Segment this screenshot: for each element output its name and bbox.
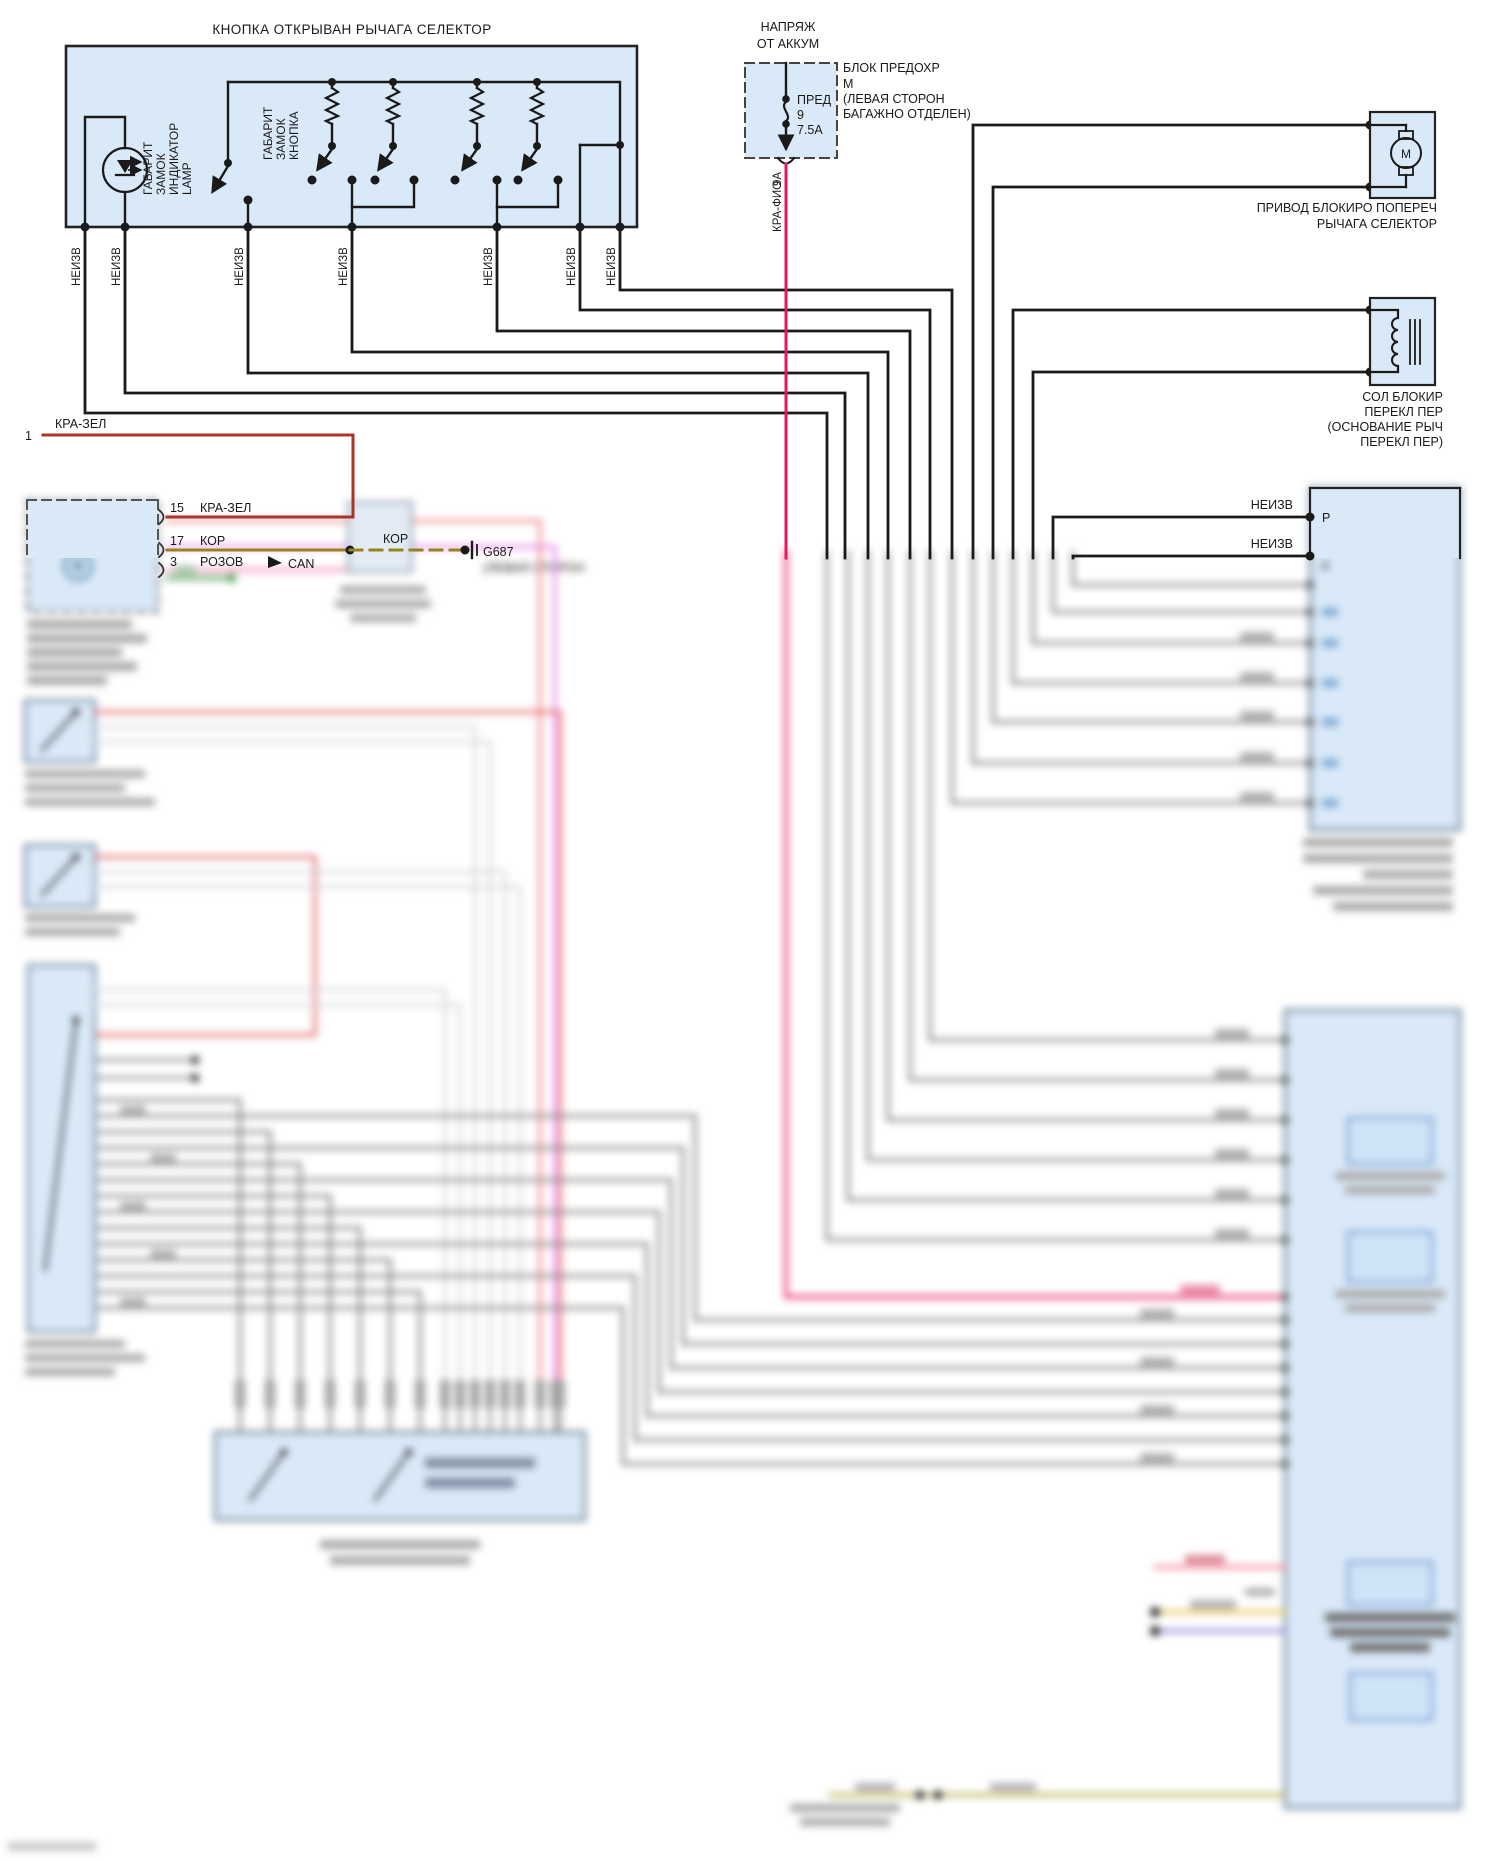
pin15-number: 15	[170, 501, 184, 515]
power-source-line2: ОТ АККУМ	[757, 37, 819, 51]
svg-text:НЕИЗВ: НЕИЗВ	[111, 247, 123, 286]
pin-p-wire-label: НЕИЗВ	[1251, 498, 1293, 512]
pin-p-label: P	[1322, 511, 1330, 525]
can-marker: CAN	[268, 556, 314, 571]
svg-text:КНОПКА: КНОПКА	[287, 111, 301, 160]
svg-text:ГАБАРИТ: ГАБАРИТ	[261, 106, 275, 160]
shift-lock-solenoid: СОЛ БЛОКИР ПЕРЕКЛ ПЕР (ОСНОВАНИЕ РЫЧ ПЕР…	[1328, 298, 1443, 449]
wiring-diagram-page: (ЛЕВАЯ СТОРОН	[0, 0, 1500, 1861]
selector-box-title: КНОПКА ОТКРЫВАН РЫЧАГА СЕЛЕКТОР	[212, 22, 491, 37]
fuse-block-caption: БЛОК ПРЕДОХР М (ЛЕВАЯ СТОРОН БАГАЖНО ОТД…	[843, 61, 971, 121]
svg-text:ЗАМОК: ЗАМОК	[154, 153, 168, 195]
svg-text:БЛОК ПРЕДОХР: БЛОК ПРЕДОХР	[843, 61, 940, 75]
pin17-number: 17	[170, 534, 184, 548]
mid-wire-color-label: КОР	[383, 532, 408, 546]
pin3-color: РОЗОВ	[200, 555, 243, 569]
motor-label-line2: РЫЧАГА СЕЛЕКТОР	[1317, 217, 1437, 231]
sharp-schematic-layer: КНОПКА ОТКРЫВАН РЫЧАГА СЕЛЕКТОР ГАБАРИТ …	[0, 0, 1500, 1861]
exit-wire-labels: НЕИЗВ НЕИЗВ НЕИЗВ НЕИЗВ НЕИЗВ НЕИЗВ НЕИЗ…	[71, 247, 618, 286]
feed-wire-color-label: КРА-ФИО	[772, 181, 784, 232]
left-connector-pins: 15 КРА-ЗЕЛ 17 КОР 3 РОЗОВ	[27, 500, 251, 577]
battery-feed-wire: КРА-ФИО 9А	[772, 164, 786, 558]
solenoid-caption: СОЛ БЛОКИР ПЕРЕКЛ ПЕР (ОСНОВАНИЕ РЫЧ ПЕР…	[1328, 390, 1443, 449]
pin17-color: КОР	[200, 534, 225, 548]
svg-text:НЕИЗВ: НЕИЗВ	[234, 247, 246, 286]
svg-text:НЕИЗВ: НЕИЗВ	[606, 247, 618, 286]
svg-text:НЕИЗВ: НЕИЗВ	[483, 247, 495, 286]
svg-text:СОЛ БЛОКИР: СОЛ БЛОКИР	[1362, 390, 1443, 404]
pin-a-wire-label: НЕИЗВ	[1251, 537, 1293, 551]
svg-text:(ЛЕВАЯ СТОРОН: (ЛЕВАЯ СТОРОН	[843, 92, 945, 106]
svg-text:ИНДИКАТОР: ИНДИКАТОР	[167, 123, 181, 195]
svg-text:ПЕРЕКЛ ПЕР): ПЕРЕКЛ ПЕР)	[1360, 435, 1443, 449]
motor-label-line1: ПРИВОД БЛОКИРО ПОПЕРЕЧ	[1257, 201, 1437, 215]
motor-symbol: M	[1401, 147, 1411, 161]
fuse-number: 9	[797, 108, 804, 122]
fuse-block: НАПРЯЖ ОТ АККУМ ПРЕД 9 7.5А БЛОК ПРЕДОХР…	[745, 20, 971, 164]
svg-text:ПЕРЕКЛ ПЕР: ПЕРЕКЛ ПЕР	[1364, 405, 1443, 419]
svg-text:ЗАМОК: ЗАМОК	[274, 118, 288, 160]
can-label: CAN	[288, 557, 314, 571]
feed-wire-gauge-label: 9А	[772, 172, 784, 186]
wire1-number: 1	[25, 429, 32, 443]
svg-text:(ОСНОВАНИЕ РЫЧ: (ОСНОВАНИЕ РЫЧ	[1328, 420, 1443, 434]
svg-text:БАГАЖНО ОТДЕЛЕН): БАГАЖНО ОТДЕЛЕН)	[843, 107, 971, 121]
pin15-color: КРА-ЗЕЛ	[200, 501, 251, 515]
selector-lock-motor: M ПРИВОД БЛОКИРО ПОПЕРЕЧ РЫЧАГА СЕЛЕКТОР	[1257, 112, 1437, 231]
svg-text:LAMP: LAMP	[180, 162, 194, 195]
svg-text:НЕИЗВ: НЕИЗВ	[566, 247, 578, 286]
wire1-color: КРА-ЗЕЛ	[55, 417, 106, 431]
ground-id-label: G687	[483, 545, 514, 559]
svg-text:ГАБАРИТ: ГАБАРИТ	[141, 141, 155, 195]
power-source-line1: НАПРЯЖ	[761, 20, 816, 34]
right-module-top: НЕИЗВ НЕИЗВ P	[1053, 488, 1460, 561]
svg-text:М: М	[843, 77, 853, 91]
svg-text:НЕИЗВ: НЕИЗВ	[71, 247, 83, 286]
fuse-rating: 7.5А	[797, 123, 823, 137]
svg-text:НЕИЗВ: НЕИЗВ	[338, 247, 350, 286]
selector-button-box: КНОПКА ОТКРЫВАН РЫЧАГА СЕЛЕКТОР ГАБАРИТ …	[66, 22, 637, 232]
pin3-number: 3	[170, 555, 177, 569]
fuse-name: ПРЕД	[797, 93, 832, 107]
